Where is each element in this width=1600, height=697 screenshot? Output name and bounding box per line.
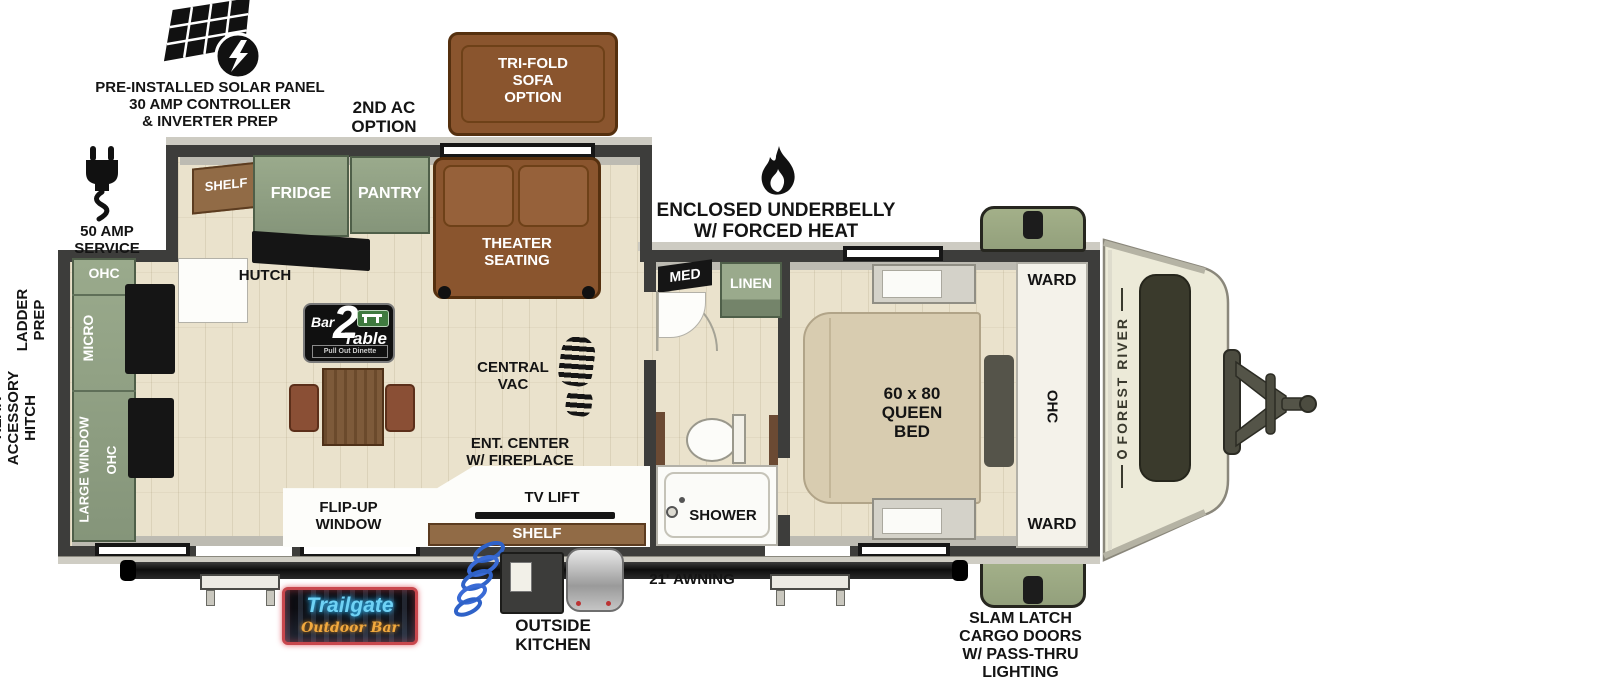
- outside-kitchen-cabinet: [500, 552, 564, 614]
- fridge-label: FRIDGE: [253, 185, 349, 203]
- theater-cushion-left: [443, 165, 514, 227]
- pantry-label: PANTRY: [350, 185, 430, 203]
- brand-rule-right: [1121, 288, 1123, 311]
- theater-foot-left: [438, 286, 451, 299]
- theater-seating-label: THEATER SEATING: [443, 236, 591, 270]
- cargo-latch-top-icon: [1023, 211, 1043, 239]
- queen-bed-label: 60 x 80 QUEEN BED: [862, 384, 962, 441]
- hutch-label: HUTCH: [228, 268, 302, 285]
- fireplace-left-wall: [128, 398, 174, 478]
- large-window-label: LARGE WINDOW: [78, 404, 95, 536]
- flame-icon: [758, 146, 800, 200]
- wall-bath-right-b: [778, 515, 790, 548]
- pillow-bottom: [882, 508, 942, 534]
- bootprint-heel-icon: [564, 388, 593, 417]
- griddle-knob-2: [606, 601, 611, 606]
- tv-lift-screen: [475, 512, 615, 519]
- bed-blanket-line: [829, 318, 831, 498]
- tongue-hitch: [1222, 348, 1318, 460]
- central-vac-label: CENTRAL VAC: [468, 360, 558, 394]
- trailgate-name: Trailgate: [285, 594, 415, 618]
- dinette-chair-right: [385, 384, 415, 432]
- cabinet-divider-2: [72, 390, 136, 392]
- second-ac-callout: 2ND AC OPTION: [343, 98, 425, 136]
- dinette-chair-left: [289, 384, 319, 432]
- theater-cushion-right: [518, 165, 589, 227]
- griddle-knob-1: [576, 601, 581, 606]
- forest-river-emblem-icon: [1117, 450, 1127, 459]
- shower-drain-icon: [679, 497, 685, 503]
- floorplan-canvas: OHC MICRO LARGE WINDOW OHC SHELF FRIDGE …: [0, 0, 1600, 697]
- bar2table-bar-text: Bar: [311, 314, 334, 330]
- power-plug-icon: [82, 146, 122, 222]
- awning-cap-right: [952, 560, 968, 581]
- trifold-sofa-label: TRI-FOLD SOFA OPTION: [448, 56, 618, 106]
- bed-headboard: [984, 355, 1014, 467]
- step-leg-4: [836, 590, 845, 606]
- step-leg-3: [776, 590, 785, 606]
- shower-pan: [664, 472, 770, 538]
- pillow-top: [882, 270, 942, 298]
- awning-label: 21' AWNING: [642, 572, 742, 589]
- wall-notch-vertical: [166, 145, 178, 262]
- underbelly-callout: ENCLOSED UNDERBELLY W/ FORCED HEAT: [648, 200, 904, 243]
- flip-up-window-label: FLIP-UP WINDOW: [296, 500, 401, 534]
- outside-kitchen-label: OUTSIDE KITCHEN: [498, 616, 608, 654]
- outside-griddle: [566, 548, 624, 612]
- outside-sink: [510, 562, 532, 592]
- forest-river-branding: FOREST RIVER: [1112, 288, 1132, 488]
- rear-hitch-callout: REAR ACCESSORY HITCH: [0, 364, 41, 472]
- brand-rule-left: [1121, 465, 1123, 488]
- ward-bottom-label: WARD: [1018, 516, 1086, 534]
- awning-cap-left: [120, 560, 136, 581]
- bar2table-logo: Bar 2 Table Pull Out Dinette: [303, 303, 395, 363]
- trailgate-sub: Outdoor Bar: [285, 620, 415, 636]
- dinette-table: [322, 368, 384, 446]
- micro-label: MICRO: [81, 303, 99, 373]
- ent-center-label: ENT. CENTER W/ FIREPLACE: [440, 436, 600, 470]
- entry-step-bedroom: [770, 574, 850, 590]
- ladder-prep-callout: LADDER PREP: [15, 274, 51, 366]
- forest-river-name: FOREST RIVER: [1114, 317, 1130, 444]
- window-living-top: [440, 143, 595, 158]
- step-leg-1: [206, 590, 215, 606]
- bar2table-tagline: Pull Out Dinette: [312, 345, 388, 358]
- hth-icon-leg1: [364, 317, 367, 323]
- shower-head-icon: [666, 506, 678, 518]
- cargo-latch-bottom-icon: [1023, 576, 1043, 604]
- cargo-doors-label: SLAM LATCH CARGO DOORS W/ PASS-THRU LIGH…: [938, 610, 1103, 682]
- amp50-callout: 50 AMP SERVICE: [48, 224, 166, 258]
- hth-icon-leg2: [376, 317, 379, 323]
- toilet: [686, 418, 738, 462]
- solar-callout: PRE-INSTALLED SOLAR PANEL 30 AMP CONTROL…: [80, 80, 340, 130]
- entry-step-living: [200, 574, 280, 590]
- trailgate-outdoor-bar-logo: Trailgate Outdoor Bar: [282, 587, 418, 645]
- solar-panel-icon: [158, 0, 270, 84]
- wall-bath-left-a: [644, 262, 656, 292]
- linen-label: LINEN: [720, 276, 782, 292]
- ohc-top-label: OHC: [72, 266, 136, 282]
- ohc-side-label: OHC: [105, 434, 121, 486]
- tv-lift-label: TV LIFT: [512, 490, 592, 507]
- window-bedroom-top: [843, 246, 943, 261]
- theater-foot-right: [582, 286, 595, 299]
- toilet-tank: [732, 414, 746, 464]
- ohc-bedroom-label: OHC: [1043, 381, 1060, 433]
- hth-dinette-icon: [357, 310, 389, 327]
- wall-rear: [58, 250, 70, 558]
- ward-top-label: WARD: [1018, 272, 1086, 290]
- shower-label: SHOWER: [680, 508, 766, 525]
- step-leg-2: [266, 590, 275, 606]
- tv-left-wall: [125, 284, 175, 374]
